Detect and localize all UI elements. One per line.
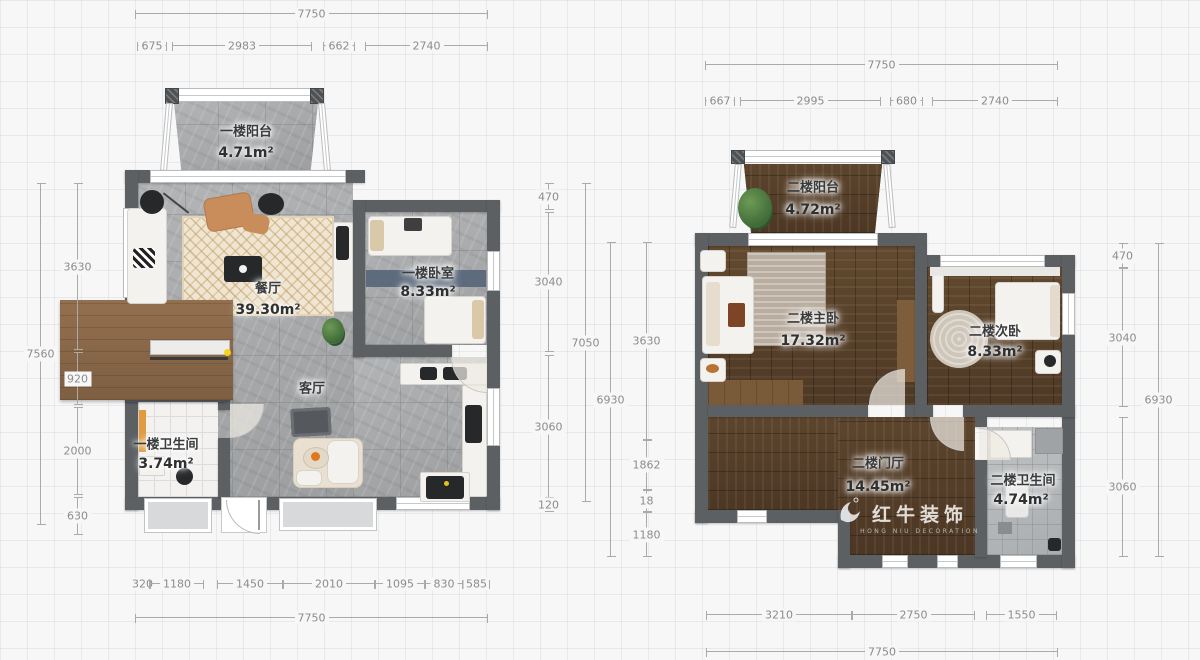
watermark-tagline: HONG NIU DECORATION	[845, 528, 995, 535]
wall-partition	[353, 345, 452, 357]
room-area: 14.45m²	[845, 479, 910, 495]
f1-desk-item	[404, 218, 422, 231]
dim: 585	[463, 583, 490, 584]
dim: 1862	[646, 440, 647, 490]
dim: 2740	[932, 100, 1058, 101]
dim-label: 2740	[978, 94, 1012, 107]
dim-label: 2995	[794, 94, 828, 107]
dim-label: 7750	[865, 645, 899, 658]
dim: 2010	[283, 583, 375, 584]
dim-label: 7750	[295, 7, 329, 20]
dim-label: 920	[64, 371, 91, 386]
room-label: 客厅	[299, 378, 325, 397]
dim-label: 830	[431, 577, 458, 590]
dim: 7750	[135, 617, 488, 618]
dim-label: 3210	[762, 608, 796, 621]
wall	[695, 510, 850, 523]
wall-partition	[218, 438, 230, 497]
f1-kitchen-side-window	[487, 388, 500, 446]
dim-label: 1450	[233, 577, 267, 590]
f1-range-knob	[444, 481, 449, 486]
f1-armchair-small	[296, 470, 322, 486]
f2-hall-window-bottom-2	[937, 555, 958, 568]
dim-label: 630	[64, 509, 91, 524]
dim-label: 3630	[61, 259, 95, 274]
room-area: 4.71m²	[218, 145, 273, 161]
f1-side-table	[140, 190, 164, 214]
f1-range	[426, 476, 464, 499]
dim: 662	[323, 45, 355, 46]
dim-label: 1862	[630, 458, 664, 473]
dim: 1450	[217, 583, 283, 584]
dim: 3630	[77, 183, 78, 350]
dim-label: 3630	[630, 334, 664, 349]
room-label: 一楼卫生间	[133, 434, 198, 453]
dim: 6930	[1158, 243, 1159, 557]
dim-label: 120	[535, 498, 562, 513]
f2-second-cabinet	[932, 273, 944, 313]
floorplan-canvas: 一楼阳台 4.71m² 餐厅 39.30m² 一楼卧室 8.33m² 客厅 一楼…	[0, 0, 1200, 660]
f2-curtain	[930, 267, 1060, 276]
dim: 920	[77, 352, 78, 405]
room-label: 二楼主卧	[787, 308, 839, 327]
dim-label: 680	[893, 94, 920, 107]
dim-label: 662	[326, 39, 353, 52]
room-area: 8.33m²	[400, 284, 455, 300]
f2-master-bench	[708, 380, 803, 405]
wall-partition	[915, 405, 933, 417]
room-label: 二楼门厅	[852, 453, 904, 472]
f1-dining-window	[150, 170, 346, 183]
room-area: 39.30m²	[235, 302, 300, 318]
bull-logo-icon	[837, 494, 863, 524]
wall	[487, 200, 500, 510]
dim: 667	[705, 100, 735, 101]
dim: 3060	[1122, 417, 1123, 557]
dim: 1550	[986, 614, 1057, 615]
f1-bedroom-window	[487, 251, 500, 291]
f1-entry-door-leaf	[258, 500, 260, 530]
f1-round-chair	[258, 193, 284, 215]
dim-label: 2750	[897, 608, 931, 621]
dim: 2740	[365, 45, 488, 46]
dim-label: 675	[139, 39, 166, 52]
f1-bay-window-left	[145, 499, 211, 532]
dim: 3040	[548, 212, 549, 352]
wall-partition	[963, 405, 1075, 417]
dim: 830	[425, 583, 463, 584]
watermark-brand: 红牛装饰	[845, 500, 995, 527]
dim: 1180	[646, 512, 647, 557]
f2-balcony-post-right	[881, 150, 895, 164]
wall-partition	[905, 405, 915, 417]
plant-icon	[322, 318, 344, 344]
f2-balcony-post-left	[731, 150, 745, 164]
dim-label: 6930	[594, 392, 628, 407]
dim-label: 1180	[630, 527, 664, 542]
f1-living-tv	[290, 407, 331, 437]
dim-label: 2000	[61, 444, 95, 459]
room-area: 4.74m²	[993, 492, 1048, 508]
dim-label: 1095	[383, 577, 417, 590]
f2-hall-window-left	[737, 510, 767, 523]
watermark: 红牛装饰 HONG NIU DECORATION	[845, 500, 995, 535]
f1-bay-window-right	[280, 499, 376, 530]
dim-label: 470	[535, 189, 562, 204]
f2-hall-window-bottom	[882, 555, 908, 568]
dim: 2995	[740, 100, 881, 101]
f1-balcony-window	[168, 88, 323, 102]
dim-label: 7050	[569, 335, 603, 350]
f2-bath-box	[998, 522, 1012, 534]
dim-label: 470	[1109, 248, 1136, 263]
room-label: 二楼卫生间	[990, 470, 1055, 489]
f1-fridge	[465, 405, 482, 443]
dim: 3040	[1122, 268, 1123, 407]
dim: 6930	[610, 242, 611, 557]
dim: 2750	[852, 614, 975, 615]
dim-label: 2740	[410, 39, 444, 52]
f1-balcony-post-right	[310, 88, 324, 104]
room-area: 3.74m²	[138, 456, 193, 472]
dim: 7560	[40, 183, 41, 525]
room-label: 一楼卧室	[402, 263, 454, 282]
f1-bed-pillow	[370, 220, 384, 251]
f1-teapot	[311, 452, 320, 461]
dim: 120	[548, 498, 549, 512]
f2-tray	[706, 364, 719, 373]
f1-stair-rail	[150, 357, 228, 360]
room-label: 二楼阳台	[787, 177, 839, 196]
dim: 7750	[135, 13, 488, 14]
f2-second-pillow	[1050, 285, 1060, 337]
wall	[353, 200, 500, 212]
dim: 3210	[706, 614, 852, 615]
f2-hall-floor-left	[708, 417, 850, 510]
dim-label: 18	[637, 494, 657, 509]
f1-pattern-pillow	[133, 248, 155, 268]
dim-label: 6930	[1142, 393, 1176, 408]
dim: 2000	[77, 407, 78, 495]
dim-label: 667	[707, 94, 734, 107]
f2-master-blanket	[728, 303, 745, 327]
f2-balcony-window	[735, 150, 891, 163]
f2-bath-window	[1000, 555, 1037, 568]
f1-stair-slot	[150, 340, 230, 355]
dim-label: 3040	[532, 275, 566, 290]
dim: 675	[137, 45, 167, 46]
dim: 7750	[706, 651, 1058, 652]
dim: 320	[135, 583, 150, 584]
room-area: 4.72m²	[785, 202, 840, 218]
dim-label: 3060	[532, 419, 566, 434]
dim-label: 2983	[225, 39, 259, 52]
dim-label: 2010	[312, 577, 346, 590]
dim: 470	[548, 183, 549, 210]
dim-label: 3040	[1106, 330, 1140, 345]
dim-label: 7750	[865, 58, 899, 71]
wall-partition	[353, 200, 365, 357]
dim: 3060	[548, 355, 549, 498]
dim: 470	[1122, 243, 1123, 268]
f2-desk-chair	[1044, 355, 1056, 367]
f2-master-window	[748, 233, 878, 246]
dim: 7750	[705, 64, 1058, 65]
f2-second-window	[940, 255, 1045, 267]
f1-table-vase	[239, 265, 247, 273]
f1-balcony-rail-left	[160, 103, 173, 171]
f2-master-pillows	[706, 282, 720, 346]
dim-label: 1550	[1005, 608, 1039, 621]
room-label: 餐厅	[255, 278, 281, 297]
dim: 1095	[375, 583, 425, 584]
room-area: 8.33m²	[967, 344, 1022, 360]
dim-label: 3060	[1106, 480, 1140, 495]
f1-balcony-post-left	[165, 88, 179, 104]
f1-sofa	[327, 440, 359, 484]
dim: 630	[77, 497, 78, 535]
f2-shower	[1035, 428, 1063, 454]
f1-balcony-rail-right	[318, 103, 331, 171]
dim-label: 1180	[160, 577, 194, 590]
dim: 18	[646, 490, 647, 512]
dim-label: 585	[463, 577, 490, 590]
f2-bath-mat	[1048, 538, 1061, 551]
f2-balcony-rail-right	[883, 164, 896, 228]
f2-second-side-window	[1062, 293, 1075, 335]
f2-master-rug	[747, 252, 826, 346]
wall-partition	[915, 245, 927, 417]
f1-bed-pillow-2	[472, 300, 484, 339]
dim: 3630	[646, 242, 647, 440]
wall-partition	[708, 405, 868, 417]
room-area: 17.32m²	[780, 333, 845, 349]
dim: 2983	[172, 45, 312, 46]
dim: 1180	[150, 583, 204, 584]
f2-nightstand-top	[700, 250, 726, 272]
dim: 680	[890, 100, 923, 101]
room-label: 一楼阳台	[220, 121, 272, 140]
room-label: 二楼次卧	[969, 321, 1021, 340]
dim-label: 7750	[295, 611, 329, 624]
dim-label: 7560	[24, 347, 58, 362]
f1-tv-screen	[336, 226, 349, 260]
dim: 7050	[585, 183, 586, 502]
wall-partition	[975, 417, 987, 427]
plant-icon	[738, 188, 772, 228]
f1-light-dot	[224, 349, 231, 356]
f1-kitchen-sink	[420, 367, 437, 380]
